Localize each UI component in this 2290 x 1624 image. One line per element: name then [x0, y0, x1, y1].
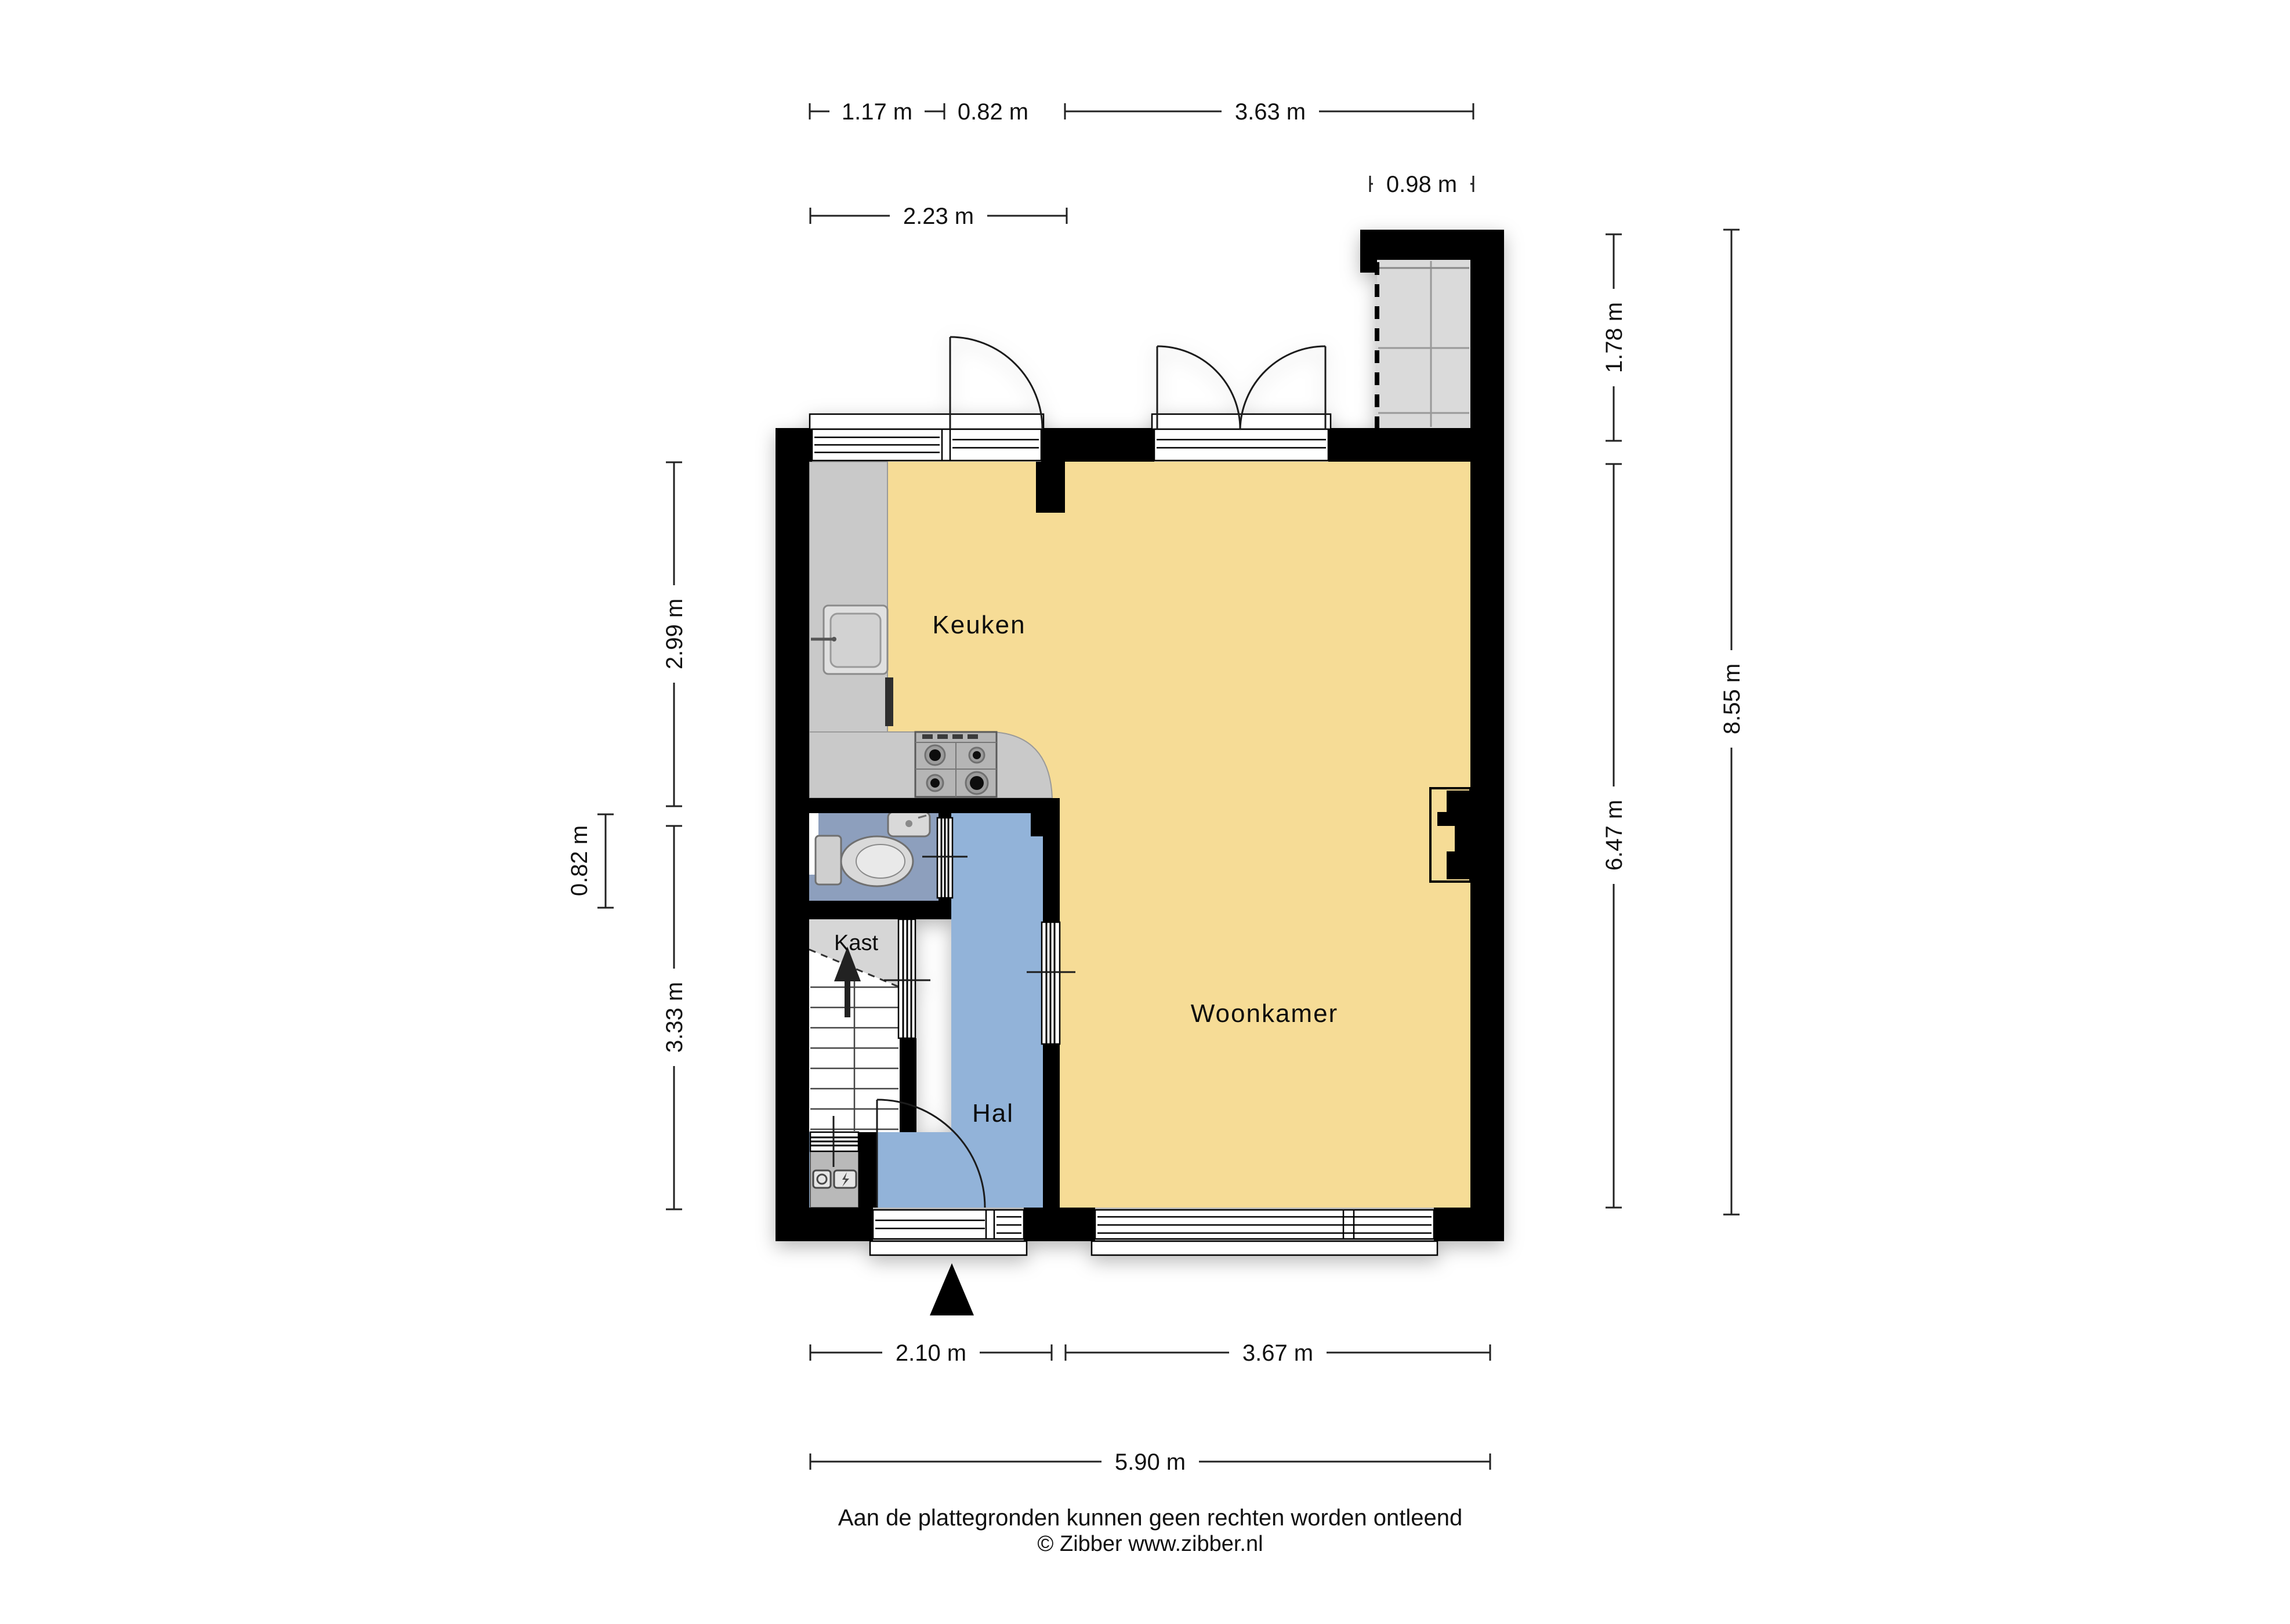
wall-stairs-right — [900, 1038, 916, 1132]
kitchen-window-and-door — [810, 337, 1043, 461]
wall-stub — [1036, 462, 1065, 513]
wall-bottom-c — [1434, 1208, 1504, 1241]
dim-extension-height: 1.78 m — [1599, 234, 1629, 441]
wall-top-b — [1041, 428, 1154, 462]
svg-text:0.82 m: 0.82 m — [958, 99, 1028, 125]
wall-bottom-b — [1024, 1208, 1095, 1241]
svg-text:5.90 m: 5.90 m — [1115, 1449, 1186, 1475]
chimney-icon — [1430, 788, 1470, 882]
wall-meter-cupboard — [858, 1132, 877, 1208]
dim-left-toilet: 0.82 m — [564, 812, 614, 909]
svg-text:0.98 m: 0.98 m — [1386, 172, 1457, 197]
dim-right-total: 8.55 m — [1716, 230, 1747, 1215]
wall-top-a — [776, 428, 812, 462]
dim-bottom-hall: 2.10 m — [810, 1337, 1052, 1368]
north-arrow-icon — [930, 1263, 974, 1315]
wall-left — [776, 428, 809, 1241]
dim-right-inner: 6.47 m — [1599, 464, 1629, 1208]
wall-hall-living-upper — [1043, 813, 1060, 922]
svg-text:1.17 m: 1.17 m — [842, 99, 912, 125]
svg-text:3.63 m: 3.63 m — [1235, 99, 1306, 125]
svg-text:3.33 m: 3.33 m — [662, 982, 687, 1053]
floor-plan: Keuken Woonkamer Hal Kast — [776, 230, 1504, 1255]
wall-right — [1470, 230, 1504, 1241]
counter-appliance — [885, 677, 893, 726]
room-label-living: Woonkamer — [1191, 999, 1338, 1028]
dim-bottom-living: 3.67 m — [1066, 1337, 1490, 1368]
floor-plan-svg: Keuken Woonkamer Hal Kast 1.17 m 0.82 m … — [0, 0, 2290, 1624]
toilet-icon — [816, 836, 913, 886]
wall-hall-living-lower — [1043, 1044, 1060, 1208]
svg-text:2.10 m: 2.10 m — [896, 1340, 966, 1366]
svg-text:0.82 m: 0.82 m — [567, 825, 592, 896]
dim-extension-width: 0.98 m — [1370, 169, 1473, 199]
svg-text:3.67 m: 3.67 m — [1242, 1340, 1313, 1366]
wall-kitchen-hall — [809, 798, 1060, 813]
floorplan-page: Keuken Woonkamer Hal Kast 1.17 m 0.82 m … — [0, 0, 2290, 1624]
dim-top-living: 3.63 m — [1065, 96, 1473, 126]
wall-top-c — [1328, 428, 1470, 462]
footer-copyright: © Zibber www.zibber.nl — [1037, 1532, 1263, 1556]
dim-left-hall: 3.33 m — [659, 826, 689, 1209]
stove-icon — [915, 732, 997, 797]
wall-bottom-a — [776, 1208, 873, 1241]
svg-text:1.78 m: 1.78 m — [1601, 302, 1627, 373]
room-label-closet: Kast — [834, 931, 878, 955]
svg-text:6.47 m: 6.47 m — [1601, 800, 1627, 871]
water-meter-icon — [813, 1170, 831, 1188]
dim-top-door: 0.82 m — [958, 99, 1028, 125]
dim-bottom-total: 5.90 m — [810, 1447, 1490, 1477]
svg-text:8.55 m: 8.55 m — [1719, 664, 1745, 734]
footer: Aan de plattegronden kunnen geen rechten… — [838, 1505, 1462, 1556]
living-double-door — [1152, 346, 1331, 461]
svg-text:2.23 m: 2.23 m — [903, 204, 974, 229]
living-window — [1092, 1210, 1437, 1255]
room-label-kitchen: Keuken — [932, 611, 1026, 639]
wall-extension-top — [1360, 230, 1504, 260]
footer-disclaimer: Aan de plattegronden kunnen geen rechten… — [838, 1505, 1462, 1531]
floor-hall — [951, 813, 1043, 1208]
dim-top-kitchen-total: 2.23 m — [810, 201, 1067, 231]
dim-left-kitchen: 2.99 m — [659, 462, 689, 806]
toilet-sink-icon — [888, 812, 930, 836]
room-label-hall: Hal — [972, 1099, 1014, 1128]
svg-text:2.99 m: 2.99 m — [662, 599, 687, 669]
electric-meter-icon — [834, 1170, 856, 1188]
dim-top-window: 1.17 m — [810, 96, 944, 126]
floor-extension — [1377, 260, 1470, 428]
wall-toilet-bottom — [809, 901, 951, 919]
